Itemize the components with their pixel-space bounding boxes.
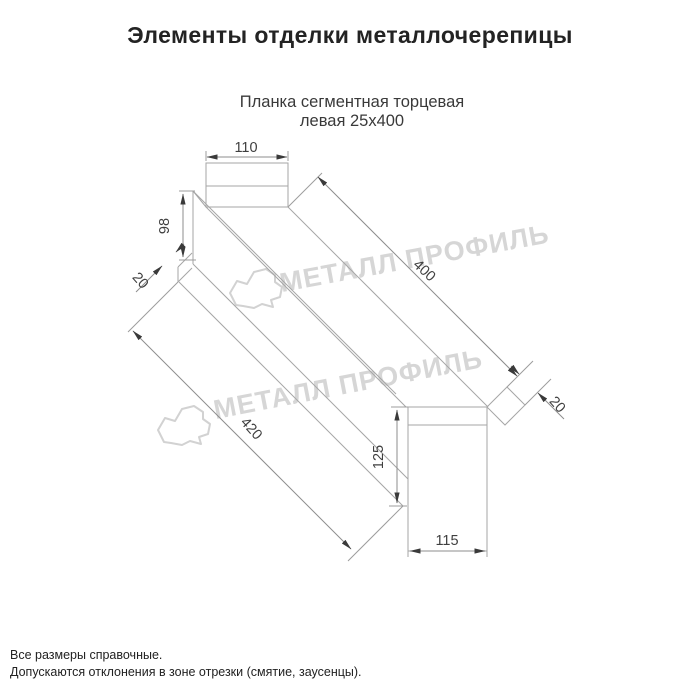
dim-web-height-top: 98 <box>157 218 173 234</box>
dim-end-height: 125 <box>371 445 387 469</box>
part-outline <box>178 163 525 557</box>
dim-end-width: 115 <box>435 533 458 549</box>
dim-hem-top: 20 <box>129 270 152 293</box>
footnotes: Все размеры справочные. Допускаются откл… <box>10 647 362 681</box>
footnote-line-1: Все размеры справочные. <box>10 647 362 664</box>
technical-drawing: 110 98 20 400 420 20 125 115 <box>0 0 700 700</box>
dim-hem-end: 20 <box>546 394 569 417</box>
metall-profil-logo-icon <box>158 406 210 445</box>
footnote-line-2: Допускаются отклонения в зоне отрезки (с… <box>10 664 362 681</box>
dimension-lines <box>133 157 564 551</box>
dimension-labels: 110 98 20 400 420 20 125 115 <box>129 140 569 549</box>
dim-length-top-edge: 400 <box>410 257 439 285</box>
dim-flange-top-width: 110 <box>234 140 257 156</box>
page: Элементы отделки металлочерепицы Планка … <box>0 0 700 700</box>
extension-lines <box>128 151 551 561</box>
